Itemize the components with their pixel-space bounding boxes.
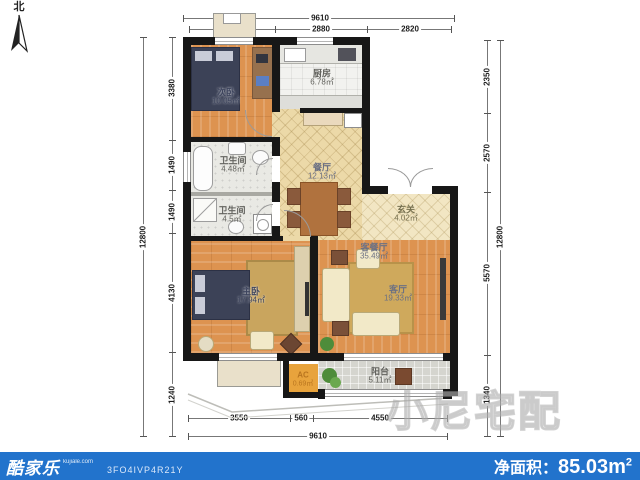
accent-chair bbox=[331, 250, 348, 265]
dim-top-total: 9610 bbox=[309, 14, 331, 23]
north-label: 北 bbox=[6, 2, 32, 13]
dining-chair bbox=[337, 188, 351, 205]
pouf bbox=[198, 336, 214, 352]
bath1-door-opening bbox=[272, 156, 280, 182]
pillow bbox=[195, 51, 212, 61]
pillow bbox=[195, 297, 205, 314]
brand-site: kujiale.com bbox=[63, 459, 93, 465]
wall bbox=[450, 194, 458, 396]
wall bbox=[443, 353, 458, 361]
flue-box bbox=[223, 13, 241, 24]
room-label-master: 主卧17.94㎡ bbox=[237, 286, 265, 305]
compass-needle-icon bbox=[6, 13, 32, 53]
net-area-unit: m2 bbox=[608, 456, 632, 479]
wall bbox=[310, 236, 318, 361]
room-label-living: 客厅19.33㎡ bbox=[384, 284, 412, 303]
wall bbox=[272, 45, 280, 112]
net-area-value: 85.03 bbox=[558, 456, 608, 479]
window-master bbox=[219, 353, 277, 361]
dim-right-total: 12800 bbox=[496, 224, 505, 250]
entry-door-swing-left bbox=[388, 168, 411, 187]
wall bbox=[183, 236, 283, 241]
shower bbox=[193, 198, 217, 222]
window bbox=[215, 37, 253, 45]
dining-chair bbox=[287, 188, 301, 205]
sink bbox=[284, 48, 306, 62]
net-area-label: 净面积： bbox=[494, 454, 558, 478]
sideboard bbox=[303, 112, 343, 126]
sofa-main bbox=[322, 268, 350, 322]
loveseat bbox=[352, 312, 400, 336]
dim-left-total: 12800 bbox=[139, 224, 148, 250]
entry-door-swing-right bbox=[410, 168, 433, 187]
dining-chair bbox=[337, 211, 351, 228]
room-label-bath2: 卫生间4.5㎡ bbox=[218, 205, 245, 224]
pillow bbox=[216, 51, 233, 61]
dim-left-seg4: 4130 bbox=[168, 282, 177, 304]
dim-right-seg1: 2350 bbox=[483, 66, 492, 88]
dim-top-seg3: 2820 bbox=[399, 25, 421, 34]
kitchen-counter-bottom bbox=[280, 95, 362, 109]
dim-right-seg3: 5570 bbox=[483, 262, 492, 284]
room-label-bath1: 卫生间4.48㎡ bbox=[219, 155, 246, 174]
window-kitchen bbox=[297, 37, 333, 45]
dim-left-seg1: 3380 bbox=[168, 77, 177, 99]
floorplan-page: 北 bbox=[0, 0, 640, 480]
window-living bbox=[344, 353, 443, 361]
master-armchair bbox=[250, 331, 274, 350]
shower-diagonal bbox=[194, 199, 216, 221]
wall bbox=[191, 137, 272, 142]
kitchen-counter-top bbox=[280, 45, 362, 64]
wall-thin bbox=[191, 192, 272, 196]
room-label-living-dining: 客餐厅35.49㎡ bbox=[360, 242, 388, 261]
desk-secondary bbox=[252, 47, 274, 99]
laptop bbox=[256, 54, 268, 63]
accent-chair bbox=[332, 321, 349, 336]
brand-logo: 酷家乐 bbox=[6, 454, 60, 479]
wall-ac bbox=[283, 392, 318, 398]
dim-top-seg2: 2880 bbox=[310, 25, 332, 34]
master-tv bbox=[305, 282, 309, 316]
plan-code: 3FO4IVP4R21Y bbox=[107, 465, 184, 475]
room-label-ac: AC0.69㎡ bbox=[293, 372, 314, 389]
wall bbox=[318, 353, 344, 361]
room-label-dining: 餐厅12.13㎡ bbox=[308, 162, 336, 181]
window-bath bbox=[183, 152, 191, 182]
watermark-text: 小尼宅配 bbox=[386, 378, 562, 439]
wall bbox=[183, 37, 370, 45]
room-label-kitchen: 厨房6.78㎡ bbox=[310, 68, 334, 87]
wall bbox=[183, 37, 191, 361]
dim-bottom-total: 9610 bbox=[307, 432, 329, 441]
dim-left-seg3: 1490 bbox=[168, 201, 177, 223]
entry-door-opening bbox=[388, 186, 432, 194]
dim-left-seg5: 1240 bbox=[168, 384, 177, 406]
dim-left-seg2: 1490 bbox=[168, 154, 177, 176]
bay-window-master bbox=[217, 357, 281, 387]
balcony-plant bbox=[330, 377, 341, 388]
tv-panel bbox=[440, 258, 446, 320]
wall bbox=[362, 37, 370, 194]
north-compass: 北 bbox=[6, 2, 32, 58]
desk-item bbox=[256, 76, 269, 86]
footer-bar: 酷家乐 kujiale.com 3FO4IVP4R21Y 净面积： 85.03 … bbox=[0, 452, 640, 480]
dim-right-seg2: 2570 bbox=[483, 142, 492, 164]
bath2-door-opening bbox=[272, 202, 280, 226]
net-area: 净面积： 85.03 m2 bbox=[494, 454, 632, 479]
pillow bbox=[195, 275, 205, 292]
balcony-post bbox=[318, 389, 325, 399]
wall bbox=[300, 108, 368, 113]
toilet bbox=[228, 142, 246, 155]
plant bbox=[320, 337, 334, 351]
hall-cabinet bbox=[344, 113, 362, 128]
room-label-bedroom2: 次卧10.05㎡ bbox=[212, 87, 240, 106]
stove bbox=[338, 48, 356, 61]
bathtub bbox=[193, 146, 213, 191]
room-label-entry: 玄关4.02㎡ bbox=[394, 204, 418, 223]
